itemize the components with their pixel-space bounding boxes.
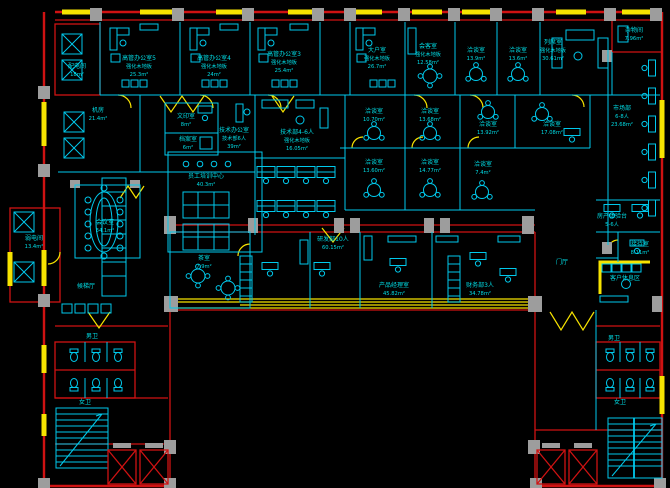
room-area-peixun: 40.3m² xyxy=(197,182,216,188)
room-area-peidian: 18m² xyxy=(70,72,84,78)
room-label-ruodian: 弱电间 xyxy=(25,234,43,242)
room-area-qt1360: 13.60m² xyxy=(363,168,385,174)
room-label-qt1360: 洽谈室 xyxy=(365,158,383,166)
shaft-hatch-mid2 xyxy=(448,256,460,302)
room-sub-jishu-office: 技术部6人 xyxy=(222,134,246,142)
cad-floor-plan-viewport: 配电间 18m² 高管办公室5 强化木地板 25.3m² 高管办公室4 强化木地… xyxy=(0,0,670,488)
room-sub-fangchan: 5-6人 xyxy=(605,221,619,228)
room-label-chashi: 茶室 xyxy=(198,254,210,262)
room-label-qt1392: 洽谈室 xyxy=(479,120,497,128)
stairs-right xyxy=(608,418,662,478)
room-area-huikeshi: 12.58m² xyxy=(417,60,439,66)
room-label-chanpin: 产品经理室 xyxy=(379,281,409,289)
room-area-chanpin: 45.82m² xyxy=(383,291,405,297)
room-area-qt-top1: 13.9m² xyxy=(467,56,486,62)
room-area-jishu46: 16.05m² xyxy=(286,146,308,152)
room-area-qt1392: 13.92m² xyxy=(477,130,499,136)
room-area-qt-top2: 13.6m² xyxy=(509,56,528,62)
furniture xyxy=(14,24,662,484)
room-sub-exec3: 强化木地板 xyxy=(271,58,298,66)
room-area-shichangbu: 23.68m² xyxy=(611,122,633,128)
room-label-qt1708: 洽谈室 xyxy=(543,120,561,128)
room-label-houtiting: 候梯厅 xyxy=(77,282,95,290)
room-area-wenyinshi: 8m² xyxy=(181,122,191,128)
room-area-danganshi: 6m² xyxy=(183,145,193,151)
room-area-jishu-office: 39m² xyxy=(227,144,241,150)
room-area-qt1070: 10.70m² xyxy=(363,117,385,123)
room-area-ruodian: 13.4m² xyxy=(25,244,44,250)
elevator-shafts xyxy=(108,443,597,484)
room-area-dahushi: 26.7m² xyxy=(368,64,387,70)
room-label-nvwei-left: 女卫 xyxy=(79,398,91,406)
room-label-zawujian: 杂物间 xyxy=(625,26,643,34)
room-area-yanfabu: 60.15m² xyxy=(322,245,344,251)
floor-plan-drawing: 配电间 18m² 高管办公室5 强化木地板 25.3m² 高管办公室4 强化木地… xyxy=(0,0,670,488)
room-area-qt1708: 17.08m² xyxy=(541,130,563,136)
room-label-qt-top2: 洽谈室 xyxy=(509,46,527,54)
room-label-exec3: 高管办公室3 xyxy=(267,50,301,58)
room-label-yanfabu: 研发部10人 xyxy=(317,235,349,243)
stairs-left xyxy=(56,408,108,468)
room-label-fangchan: 房产体验台 xyxy=(597,212,627,220)
room-sub-dahushi: 强化木地板 xyxy=(364,54,391,62)
room-label-nanwei-right: 男卫 xyxy=(608,335,620,342)
room-area-exec4: 24m² xyxy=(207,72,221,78)
room-label-exec5: 高管办公室5 xyxy=(122,54,156,62)
room-area-qt1477: 14.77m² xyxy=(419,168,441,174)
room-label-jifang: 机房 xyxy=(92,106,104,114)
room-area-qt1368: 13.68m² xyxy=(419,117,441,123)
room-label-huikeshi: 会客室 xyxy=(419,42,437,50)
room-label-shichangbu: 市场部 xyxy=(613,104,631,112)
room-label-kehu: 客户休息区 xyxy=(610,274,640,282)
room-area-exec3: 25.4m² xyxy=(275,68,294,74)
room-area-chashi: 7.9m² xyxy=(196,264,211,270)
room-label-qt-top1: 洽谈室 xyxy=(467,46,485,54)
room-label-peidian: 配电间 xyxy=(68,62,86,70)
room-label-qt1070: 洽谈室 xyxy=(365,107,383,115)
room-area-huiyishi: 34.1m² xyxy=(96,228,115,234)
room-label-qt1368: 洽谈室 xyxy=(421,107,439,115)
room-label-nvwei-right: 女卫 xyxy=(614,398,626,406)
room-area-zawujian: 7.96m² xyxy=(625,36,644,42)
room-label-danganshi: 档案室 xyxy=(179,135,197,143)
room-sub-shichangbu: 6-8人 xyxy=(615,113,629,120)
room-label-jishu-office: 技术办公室 xyxy=(219,126,249,134)
room-sub-liexishi: 强化木地板 xyxy=(540,46,567,54)
room-label-liexishi: 列席室 xyxy=(544,38,562,46)
room-label-peixun: 员工培训中心 xyxy=(188,172,224,180)
room-label-qt1477: 洽谈室 xyxy=(421,158,439,166)
room-label-huiyishi: 会议室 xyxy=(96,218,114,226)
room-label-caiwu: 财务部3人 xyxy=(466,281,494,289)
room-area-jiedaishi: 8.11m² xyxy=(631,250,650,256)
room-area-liexishi: 30.61m² xyxy=(542,56,564,62)
room-label-menting: 门厅 xyxy=(556,258,568,266)
room-area-exec5: 25.3m² xyxy=(130,72,149,78)
room-sub-exec5: 强化木地板 xyxy=(126,62,153,70)
room-sub-huikeshi: 强化木地板 xyxy=(415,50,442,58)
room-label-dahushi: 大户室 xyxy=(368,46,386,54)
room-label-jiedaishi: 接待室 xyxy=(631,240,649,248)
room-label-qt74: 洽谈室 xyxy=(474,160,492,168)
room-label-exec4: 高管办公室4 xyxy=(197,54,231,62)
room-label-nanwei-left: 男卫 xyxy=(86,333,98,340)
room-area-caiwu: 34.78m² xyxy=(469,291,491,297)
room-sub-jishu46: 强化木地板 xyxy=(284,136,311,144)
room-label-jishu46: 技术部4-6人 xyxy=(280,128,314,136)
room-sub-exec4: 强化木地板 xyxy=(201,62,228,70)
room-area-jifang: 21.4m² xyxy=(89,116,108,122)
room-area-qt74: 7.4m² xyxy=(475,170,490,176)
room-label-wenyinshi: 文印室 xyxy=(177,112,195,120)
